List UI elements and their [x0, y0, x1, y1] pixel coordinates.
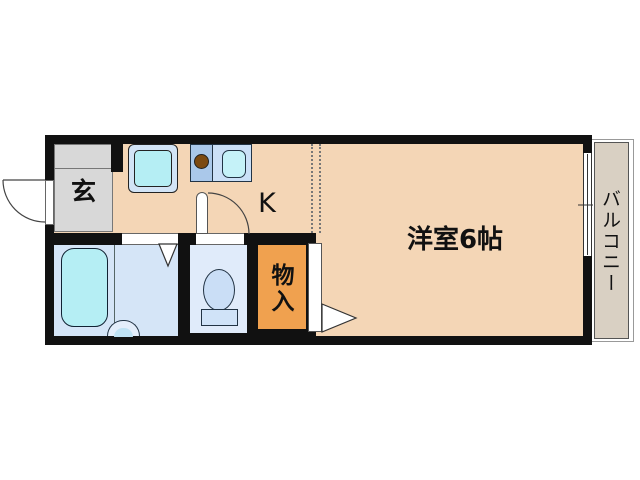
window	[583, 153, 592, 256]
toilet-tank	[201, 309, 238, 326]
partition-dotted-line	[319, 144, 321, 233]
closet-label: 物入	[269, 249, 297, 329]
partition-dotted-line	[311, 144, 313, 233]
washing-machine	[134, 150, 172, 187]
closet-sliding-door	[308, 243, 322, 332]
wall-pillar	[111, 135, 123, 172]
entrance-door-opening	[45, 180, 54, 225]
toilet-door-opening	[196, 233, 244, 245]
toilet	[203, 269, 235, 311]
kitchen-sink	[222, 150, 246, 178]
floor-plan: 玄 K 洋室6帖 物入 バルコニー	[0, 0, 640, 480]
bathtub	[61, 248, 108, 327]
genkan-label: 玄	[54, 172, 113, 208]
bathroom-door-opening	[122, 233, 178, 245]
stove-burner	[194, 154, 209, 169]
kitchen-label: K	[248, 188, 286, 219]
toilet-door	[196, 192, 208, 234]
western-room-label: 洋室6帖	[365, 219, 545, 256]
balcony-label: バルコニー	[599, 147, 624, 335]
entrance-door-arc	[3, 180, 45, 222]
entrance-step	[55, 145, 112, 169]
